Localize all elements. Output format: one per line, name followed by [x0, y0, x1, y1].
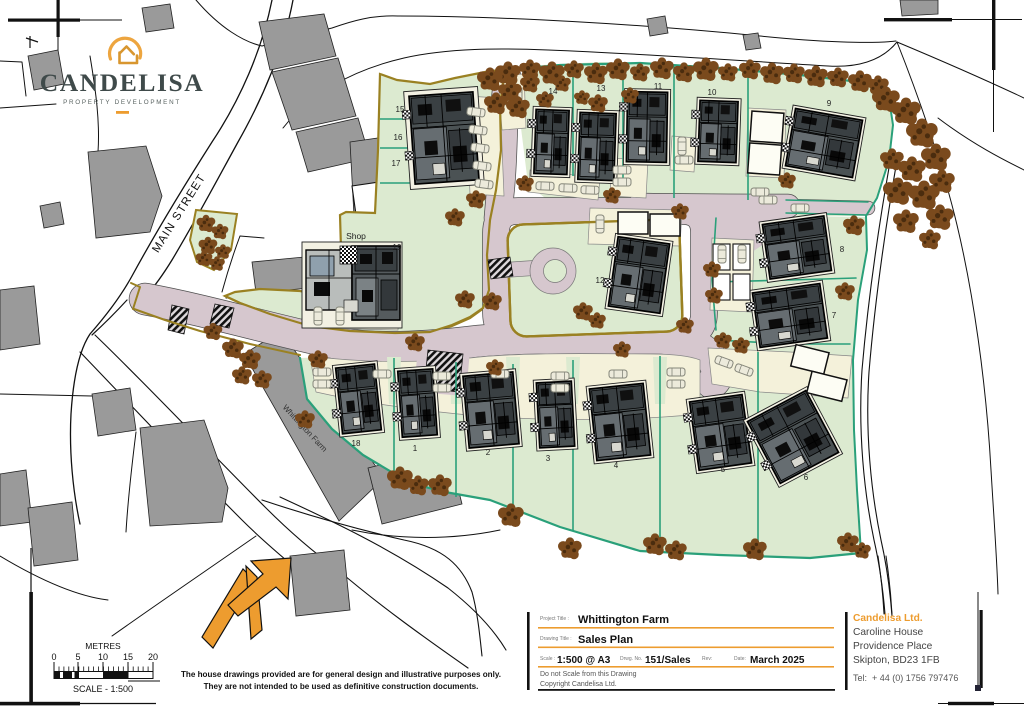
svg-text:17: 17	[392, 159, 401, 168]
svg-text:10: 10	[98, 652, 108, 662]
svg-text:SCALE - 1:500: SCALE - 1:500	[73, 684, 133, 694]
svg-text:15: 15	[123, 652, 133, 662]
svg-text:20: 20	[148, 652, 158, 662]
svg-text:Project Title :: Project Title :	[540, 616, 569, 622]
svg-text:10: 10	[708, 88, 717, 97]
svg-text:Tel: + 44 (0) 1756 797476: Tel: + 44 (0) 1756 797476	[853, 673, 958, 683]
svg-text:Rev:: Rev:	[702, 656, 712, 662]
svg-text:3: 3	[546, 454, 551, 463]
svg-text:Candelisa Ltd.: Candelisa Ltd.	[853, 613, 923, 624]
svg-text:Scale :: Scale :	[540, 656, 555, 662]
svg-text:CANDELISA: CANDELISA	[40, 68, 205, 97]
svg-text:METRES: METRES	[85, 641, 121, 651]
svg-text:Skipton, BD23 1FB: Skipton, BD23 1FB	[853, 655, 940, 666]
svg-text:1: 1	[413, 444, 418, 453]
svg-text:Drawing Title :: Drawing Title :	[540, 636, 572, 642]
svg-text:Sales Plan: Sales Plan	[578, 634, 633, 646]
svg-text:151/Sales: 151/Sales	[645, 655, 691, 666]
svg-text:8: 8	[840, 245, 845, 254]
svg-text:Do not Scale from this Drawing: Do not Scale from this Drawing	[540, 671, 637, 678]
svg-text:19: 19	[393, 243, 402, 252]
svg-text:7: 7	[832, 311, 837, 320]
svg-text:5: 5	[75, 652, 80, 662]
svg-text:5: 5	[721, 465, 726, 474]
svg-text:0: 0	[51, 652, 56, 662]
svg-text:6: 6	[804, 473, 809, 482]
svg-text:Shop: Shop	[346, 231, 366, 241]
svg-text:March 2025: March 2025	[750, 655, 805, 666]
svg-text:12: 12	[596, 276, 605, 285]
svg-text:PROPERTY DEVELOPMENT: PROPERTY DEVELOPMENT	[63, 99, 181, 106]
svg-text:16: 16	[394, 133, 403, 142]
svg-text:1:500 @ A3: 1:500 @ A3	[557, 655, 611, 666]
svg-text:The house drawings provided ar: The house drawings provided are for gene…	[181, 670, 501, 679]
svg-text:18: 18	[352, 439, 361, 448]
svg-text:Date:: Date:	[734, 656, 746, 662]
svg-text:13: 13	[597, 84, 606, 93]
svg-text:11: 11	[654, 82, 663, 91]
svg-text:4: 4	[614, 461, 619, 470]
svg-text:Drwg. No.: Drwg. No.	[620, 656, 642, 662]
svg-text:Whittington Farm: Whittington Farm	[578, 614, 669, 626]
svg-text:Caroline House: Caroline House	[853, 627, 924, 638]
svg-text:15: 15	[396, 105, 405, 114]
svg-text:14: 14	[549, 87, 558, 96]
svg-text:They are not intended to be us: They are not intended to be used as defi…	[204, 682, 479, 691]
svg-text:9: 9	[827, 99, 832, 108]
svg-text:Providence Place: Providence Place	[853, 641, 933, 652]
svg-text:Copyright Candelisa Ltd.: Copyright Candelisa Ltd.	[540, 681, 617, 688]
svg-text:2: 2	[486, 448, 491, 457]
